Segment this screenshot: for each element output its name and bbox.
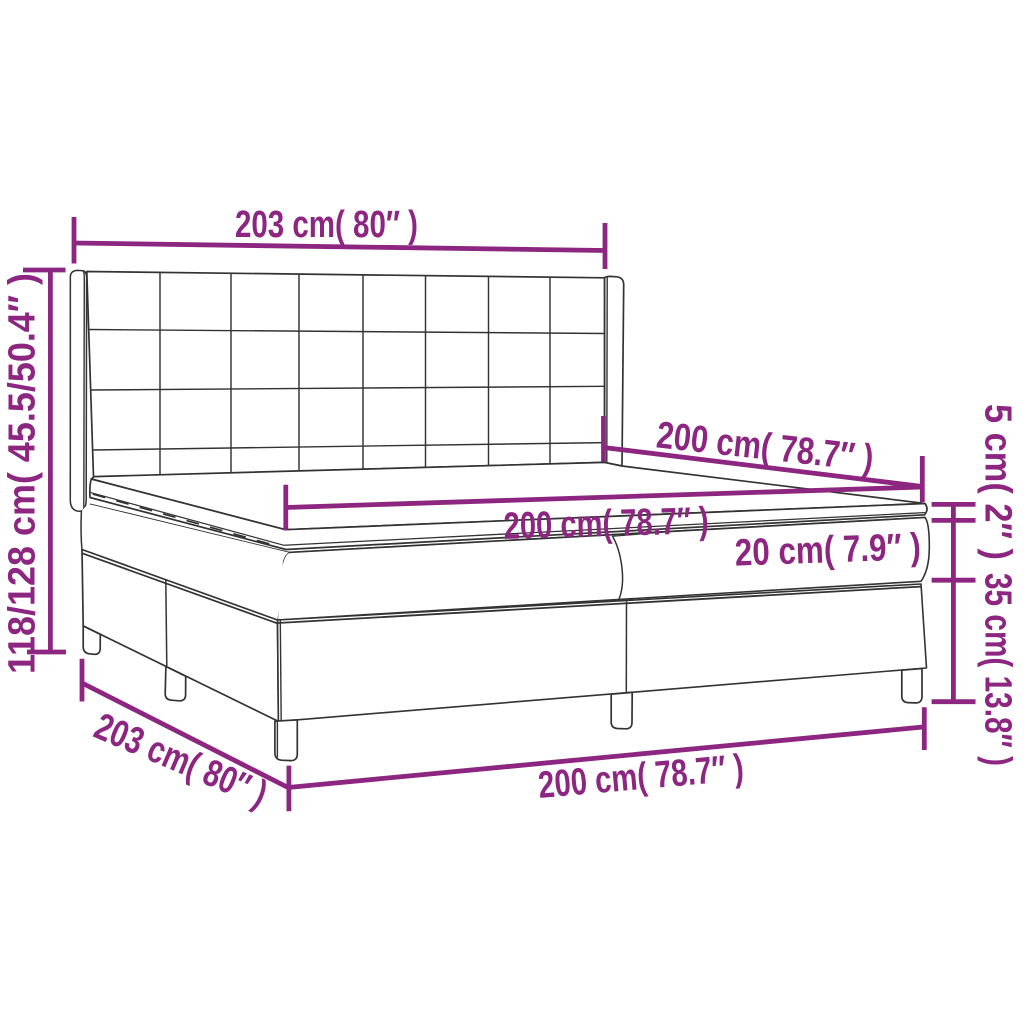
svg-text:20 cm( 7.9″ ): 20 cm( 7.9″ ) <box>734 526 921 574</box>
svg-text:203 cm( 80″ ): 203 cm( 80″ ) <box>235 204 418 246</box>
svg-text:200 cm( 78.7″ ): 200 cm( 78.7″ ) <box>503 500 709 548</box>
svg-text:5 cm( 2″ ): 5 cm( 2″ ) <box>977 404 1019 560</box>
svg-text:118/128 cm( 45.5/50.4″ ): 118/128 cm( 45.5/50.4″ ) <box>2 273 44 674</box>
svg-text:35 cm( 13.8″ ): 35 cm( 13.8″ ) <box>977 573 1019 766</box>
